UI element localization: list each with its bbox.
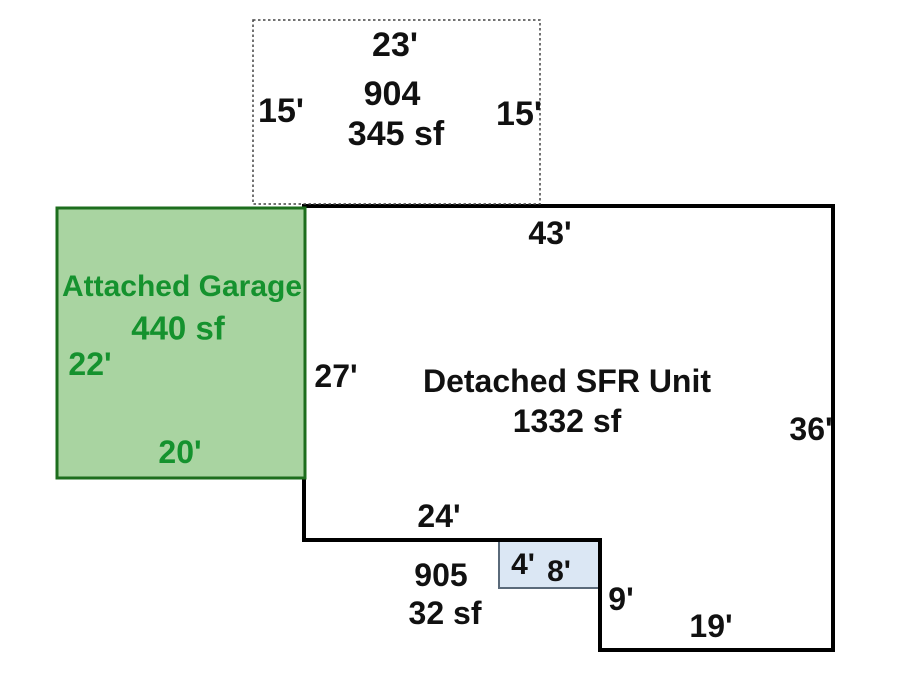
garage-area-label: 440 sf xyxy=(131,312,225,345)
porch-id-label: 904 xyxy=(364,77,421,111)
sfr-name-label: Detached SFR Unit xyxy=(423,365,711,397)
sfr-left-height-label: 27' xyxy=(314,360,357,392)
porch-area-label: 345 sf xyxy=(348,117,444,151)
porch-right-height-label: 15' xyxy=(496,97,542,131)
sfr-step-height-label: 9' xyxy=(608,583,633,615)
stoop-height-label: 4' xyxy=(511,550,535,580)
garage-name-label: Attached Garage xyxy=(62,272,302,302)
stoop-id-label: 905 xyxy=(414,559,467,591)
sfr-bottom-width-label: 19' xyxy=(689,610,732,642)
garage-height-label: 22' xyxy=(68,348,111,380)
sfr-top-width-label: 43' xyxy=(528,217,571,249)
sfr-area-label: 1332 sf xyxy=(513,405,622,437)
sfr-notch-width-label: 24' xyxy=(417,500,460,532)
stoop-width-label: 8' xyxy=(547,557,571,587)
floorplan-sketch: 23' 904 345 sf 15' 15' Attached Garage 4… xyxy=(0,0,900,675)
porch-left-height-label: 15' xyxy=(258,94,304,128)
garage-width-label: 20' xyxy=(158,436,201,468)
sfr-right-height-label: 36' xyxy=(789,413,832,445)
porch-width-label: 23' xyxy=(372,28,418,62)
stoop-area-label: 32 sf xyxy=(409,597,482,629)
